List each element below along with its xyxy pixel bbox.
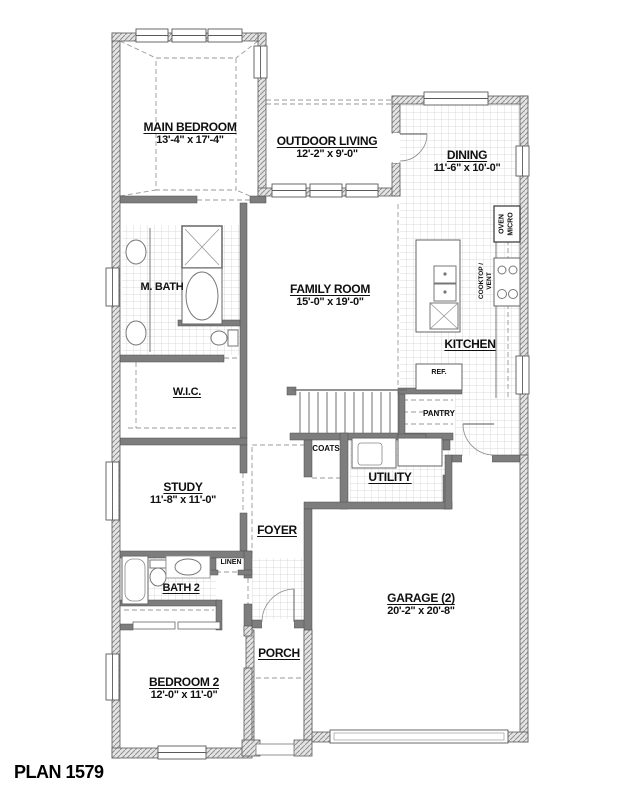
room-label-linen: LINEN	[221, 559, 242, 567]
room-label-pantry: PANTRY	[423, 409, 455, 418]
room-label-bedroom2: BEDROOM 2 12'-0" x 11'-0"	[149, 675, 219, 702]
floor-plan-drawing	[0, 0, 640, 800]
cooktop-vent-label: COOKTOP / VENT	[478, 263, 494, 299]
room-label-utility: UTILITY	[368, 470, 411, 484]
room-label-family-room: FAMILY ROOM 15'-0" x 19'-0"	[290, 282, 370, 309]
room-label-wic: W.I.C.	[173, 386, 201, 399]
room-label-outdoor-living: OUTDOOR LIVING 12'-2" x 9'-0"	[277, 134, 377, 161]
floor-plan: MAIN BEDROOM 13'-4" x 17'-4" OUTDOOR LIV…	[0, 0, 640, 800]
bath2-sink	[175, 559, 201, 575]
room-name: GARAGE (2)	[387, 591, 455, 605]
oven-micro-label: OVEN MICRO	[498, 212, 516, 235]
room-name: COATS	[312, 444, 339, 453]
room-dims: 11'-6" x 10'-0"	[434, 162, 501, 175]
porch-post-right	[294, 740, 312, 756]
room-dims: 20'-2" x 20'-8"	[387, 605, 455, 618]
cooktop-label-line2: VENT	[486, 263, 494, 299]
room-name: PORCH	[258, 646, 300, 660]
garage-door-opening	[462, 456, 492, 462]
room-name: W.I.C.	[173, 386, 201, 399]
oven-label-line1: OVEN	[498, 212, 507, 235]
room-label-study: STUDY 11'-8" x 11'-0"	[150, 480, 216, 507]
room-label-porch: PORCH	[258, 646, 300, 660]
room-name: BATH 2	[162, 582, 199, 595]
room-label-kitchen: KITCHEN	[444, 337, 495, 351]
porch-step	[256, 744, 294, 755]
dryer	[398, 438, 442, 466]
mbath-sink-1	[126, 240, 146, 264]
cooktop-label-line1: COOKTOP /	[478, 263, 486, 299]
front-door-opening	[262, 619, 294, 629]
room-label-main-bedroom: MAIN BEDROOM 13'-4" x 17'-4"	[143, 120, 236, 147]
cooktop	[494, 258, 520, 306]
room-label-dining: DINING 11'-6" x 10'-0"	[434, 148, 501, 175]
room-name: OUTDOOR LIVING	[277, 134, 377, 148]
mbath-sink-2	[126, 321, 146, 345]
bathtub-master	[182, 268, 222, 324]
room-name: FOYER	[257, 523, 297, 537]
stairs	[292, 390, 407, 433]
room-name: STUDY	[150, 480, 216, 494]
room-dims: 12'-0" x 11'-0"	[149, 689, 219, 702]
room-dims: 15'-0" x 19'-0"	[290, 296, 370, 309]
oven-label-line2: MICRO	[507, 212, 516, 235]
room-label-ref: REF.	[431, 369, 446, 377]
room-name: MAIN BEDROOM	[143, 120, 236, 134]
closet-slider-right	[178, 622, 220, 629]
room-dims: 13'-4" x 17'-4"	[143, 134, 236, 147]
room-dims: 12'-2" x 9'-0"	[277, 148, 377, 161]
room-name: UTILITY	[368, 470, 411, 484]
dining-door-opening	[393, 133, 399, 163]
plan-title: PLAN 1579	[14, 762, 104, 783]
room-name: DINING	[434, 148, 501, 162]
room-label-foyer: FOYER	[257, 523, 297, 537]
tile-floors	[122, 104, 520, 622]
mbath-toilet-tank	[228, 330, 238, 346]
room-label-bath2: BATH 2	[162, 582, 199, 595]
room-name: BEDROOM 2	[149, 675, 219, 689]
room-label-coats: COATS	[312, 444, 339, 453]
room-label-m-bath: M. BATH	[141, 281, 184, 294]
room-name: LINEN	[221, 559, 242, 567]
room-name: REF.	[431, 369, 446, 377]
room-name: PANTRY	[423, 409, 455, 418]
room-name: M. BATH	[141, 281, 184, 294]
room-name: KITCHEN	[444, 337, 495, 351]
room-label-garage: GARAGE (2) 20'-2" x 20'-8"	[387, 591, 455, 618]
bath2-toilet-tank	[150, 560, 166, 568]
mbath-toilet	[211, 331, 227, 345]
room-dims: 11'-8" x 11'-0"	[150, 494, 216, 507]
closet-slider-left	[133, 622, 175, 629]
room-name: FAMILY ROOM	[290, 282, 370, 296]
